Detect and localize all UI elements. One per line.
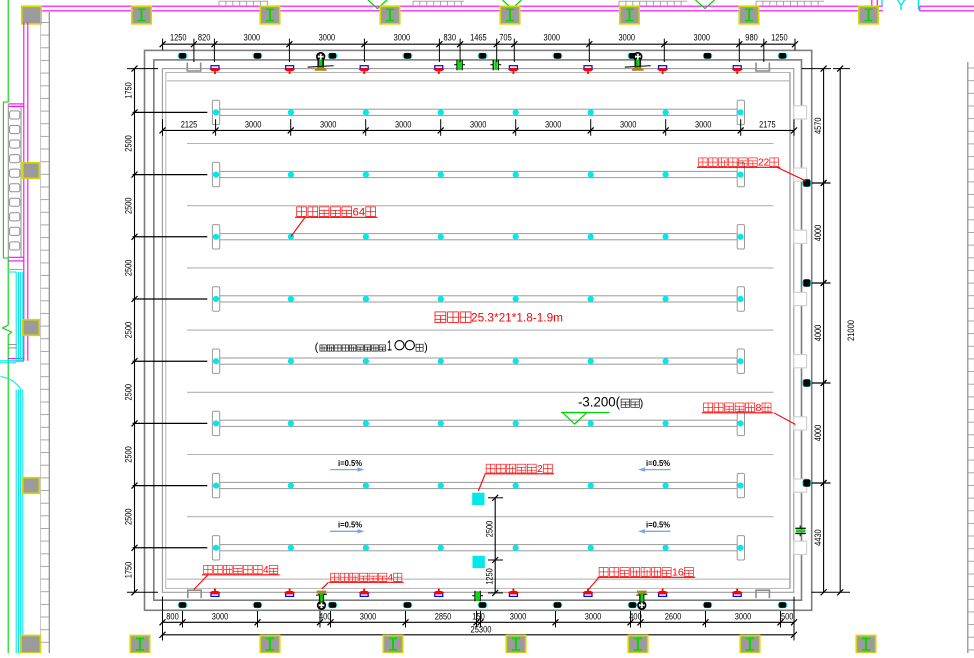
svg-text:3000: 3000 (545, 119, 562, 129)
svg-text:): ) (424, 342, 428, 354)
svg-text:1750: 1750 (124, 82, 134, 99)
svg-text:3000: 3000 (619, 33, 636, 43)
svg-text:2500: 2500 (124, 135, 134, 152)
svg-text:2500: 2500 (124, 384, 134, 401)
svg-text:2500: 2500 (124, 260, 134, 277)
svg-text:i=0.5%: i=0.5% (646, 520, 670, 530)
svg-text:3000: 3000 (735, 612, 752, 622)
svg-text:830: 830 (444, 33, 457, 43)
svg-text:3000: 3000 (510, 612, 527, 622)
svg-text:3000: 3000 (245, 119, 262, 129)
svg-text:2125: 2125 (181, 119, 198, 129)
svg-text:3000: 3000 (620, 119, 637, 129)
svg-text:3000: 3000 (244, 33, 261, 43)
svg-text:4000: 4000 (813, 425, 823, 442)
svg-text:2500: 2500 (485, 521, 495, 538)
svg-text:400: 400 (319, 612, 332, 622)
svg-text:21000: 21000 (846, 320, 856, 341)
svg-text:500: 500 (781, 612, 794, 622)
svg-text:3000: 3000 (585, 612, 602, 622)
svg-text:-3.200(: -3.200( (578, 395, 620, 410)
svg-text:4430: 4430 (813, 529, 823, 546)
svg-text:2500: 2500 (124, 197, 134, 214)
svg-text:3000: 3000 (695, 119, 712, 129)
svg-text:150: 150 (472, 612, 485, 622)
svg-text:1: 1 (387, 338, 392, 355)
svg-text:25.3*21*1.8-1.9m: 25.3*21*1.8-1.9m (471, 313, 563, 325)
svg-text:2175: 2175 (759, 119, 776, 129)
svg-text:1250: 1250 (485, 568, 495, 585)
svg-text:i=0.5%: i=0.5% (338, 520, 362, 530)
svg-text:64: 64 (353, 207, 366, 219)
svg-text:3000: 3000 (319, 33, 336, 43)
svg-text:3000: 3000 (320, 119, 337, 129)
svg-text:4570: 4570 (813, 118, 823, 135)
svg-text:i=0.5%: i=0.5% (338, 458, 362, 468)
svg-text:1465: 1465 (470, 33, 487, 43)
svg-text:820: 820 (198, 33, 211, 43)
svg-text:400: 400 (629, 612, 642, 622)
svg-text:1750: 1750 (124, 562, 134, 579)
svg-text:2600: 2600 (665, 612, 682, 622)
svg-text:3000: 3000 (694, 33, 711, 43)
svg-text:1250: 1250 (771, 33, 788, 43)
svg-text:3000: 3000 (470, 119, 487, 129)
svg-text:1250: 1250 (170, 33, 187, 43)
svg-text:3000: 3000 (212, 612, 229, 622)
svg-text:3000: 3000 (544, 33, 561, 43)
svg-text:4: 4 (388, 572, 393, 583)
svg-text:3000: 3000 (394, 33, 411, 43)
svg-text:3000: 3000 (395, 119, 412, 129)
svg-text:980: 980 (745, 33, 758, 43)
svg-text:2500: 2500 (124, 322, 134, 339)
svg-text:705: 705 (499, 33, 512, 43)
svg-text:): ) (640, 398, 644, 410)
svg-text:i=0.5%: i=0.5% (646, 458, 670, 468)
svg-text:25300: 25300 (471, 625, 492, 635)
svg-text:2500: 2500 (124, 446, 134, 463)
svg-text:2850: 2850 (435, 612, 452, 622)
svg-text:3000: 3000 (360, 612, 377, 622)
svg-text:800: 800 (166, 612, 179, 622)
svg-text:4000: 4000 (813, 325, 823, 342)
svg-text:4000: 4000 (813, 225, 823, 242)
svg-text:2500: 2500 (124, 508, 134, 525)
svg-text:(: ( (315, 342, 319, 354)
